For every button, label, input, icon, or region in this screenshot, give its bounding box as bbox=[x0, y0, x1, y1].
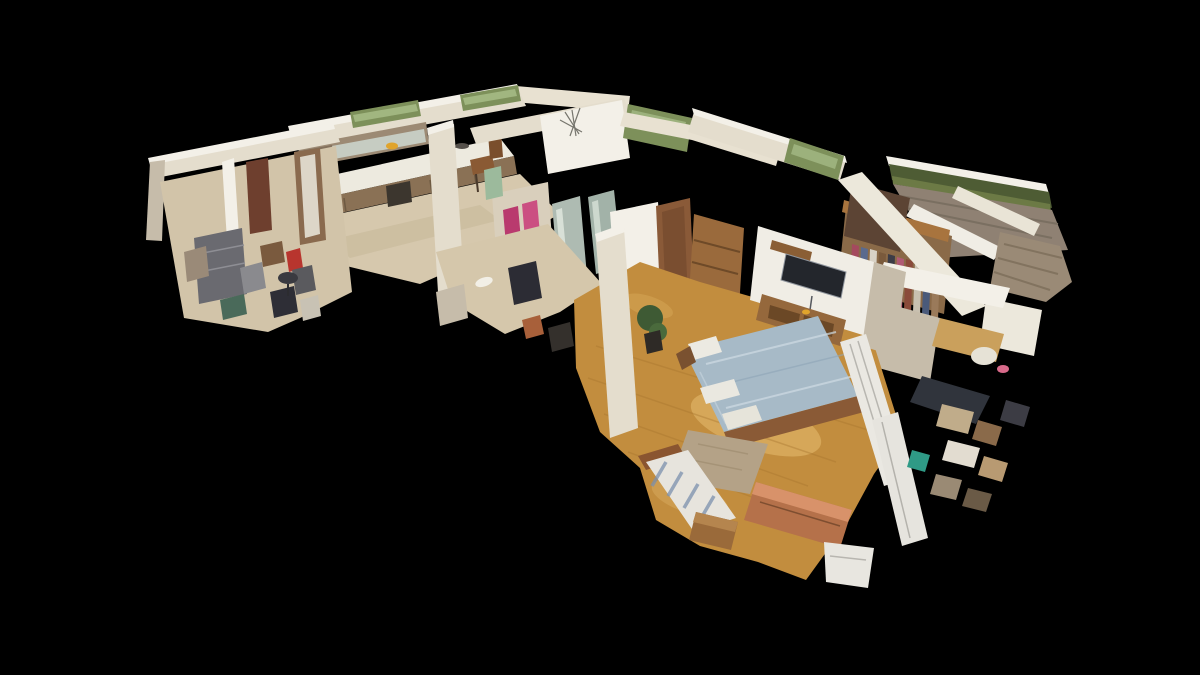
plant-stand bbox=[644, 330, 663, 354]
kitchen-sink bbox=[455, 143, 469, 149]
dollhouse-3d-viewport[interactable] bbox=[0, 0, 1200, 675]
bottom-white-unit bbox=[824, 542, 874, 588]
dollhouse-render bbox=[0, 0, 1200, 675]
maroon-wardrobe bbox=[246, 158, 272, 234]
wicker-chair bbox=[971, 347, 997, 365]
fruit-bowl bbox=[386, 143, 398, 150]
green-towel bbox=[484, 166, 503, 200]
pink-item bbox=[997, 365, 1009, 373]
office-chair bbox=[278, 272, 298, 284]
dark-bag bbox=[508, 261, 542, 305]
sideboard-item bbox=[802, 310, 810, 315]
study-clutter bbox=[184, 246, 209, 282]
